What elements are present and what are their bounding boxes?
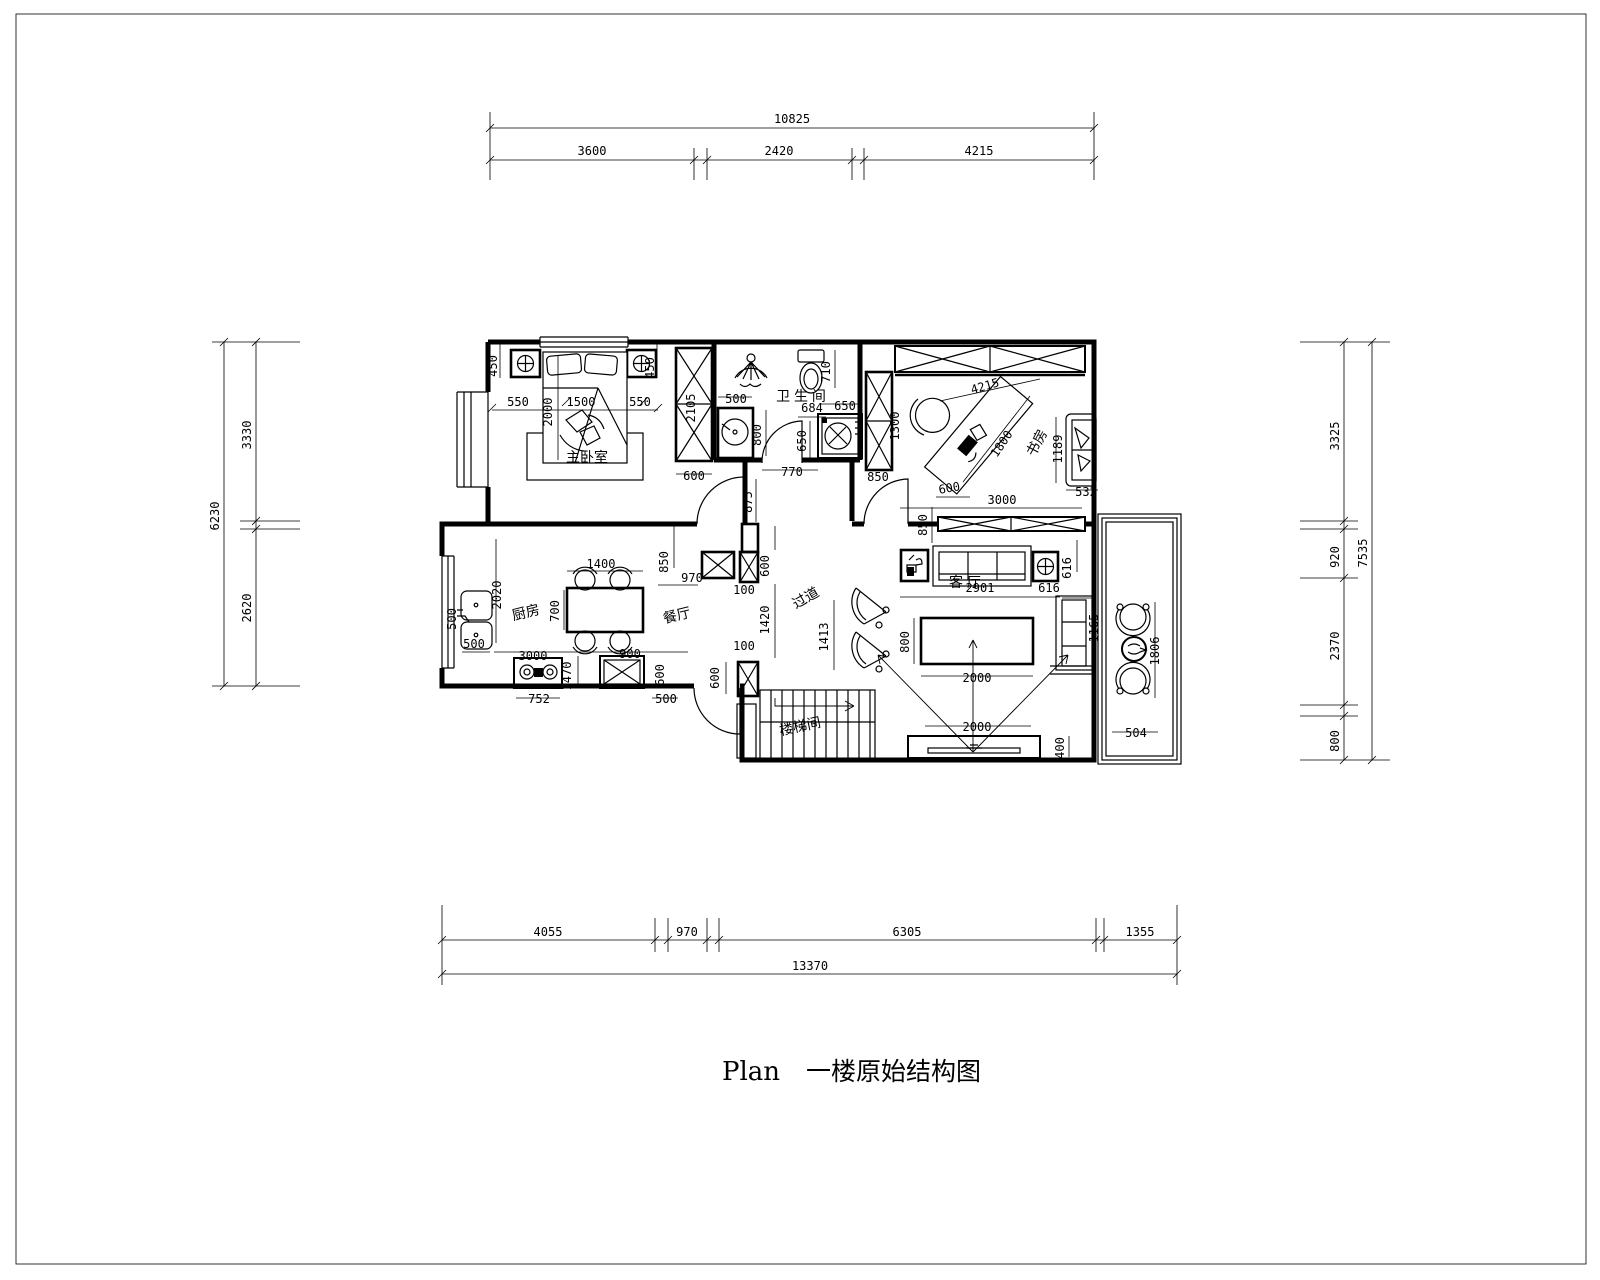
dim-right-seg-1: 920 (1328, 546, 1342, 568)
shower-icon (735, 354, 767, 387)
dimension-label: 1189 (1051, 435, 1065, 464)
living-sofa (933, 546, 1031, 586)
dimension-label: 500 (725, 392, 747, 406)
room-label-study: 书房 (1023, 427, 1050, 459)
corridor-column-a (702, 552, 734, 578)
dimension-label: 4215 (969, 375, 1001, 396)
dimension-label: 600 (758, 555, 772, 577)
dim-right-total: 7535 (1356, 539, 1370, 568)
living-appliance-box (901, 550, 928, 581)
dimension-label: 800 (750, 424, 764, 446)
dimension-label: 400 (1053, 737, 1067, 759)
balcony-chair-2 (1116, 662, 1150, 694)
dimension-label: 1806 (1148, 637, 1162, 666)
drawing-title: Plan 一楼原始结构图 (722, 1057, 981, 1087)
floor-plan-page: 10825 3600 2420 4215 4055 970 6305 1355 … (0, 0, 1600, 1280)
nightstand-left (511, 350, 540, 377)
corridor-armchair-1 (852, 588, 889, 628)
room-label-corridor: 过道 (789, 584, 821, 612)
dimension-label: 850 (657, 551, 671, 573)
dimension-label: 532 (1075, 485, 1097, 499)
dimension-label: 550 (507, 395, 529, 409)
dimension-label: 3000 (519, 649, 548, 663)
room-label-kitchen: 厨房 (510, 601, 541, 623)
dimension-label: 600 (708, 667, 722, 689)
corridor-armchair-2 (852, 632, 889, 672)
dining-chairs (573, 567, 632, 654)
dimension-label: 2020 (490, 581, 504, 610)
title-plan-text: 一楼原始结构图 (806, 1058, 981, 1086)
study-top-window (895, 346, 1085, 375)
page-border (16, 14, 1586, 1264)
dimension-label: 100 (733, 583, 755, 597)
dimension-label: 504 (1125, 726, 1147, 740)
dimension-label: 2000 (541, 398, 555, 427)
dimension-label: 100 (733, 639, 755, 653)
dining-table (567, 588, 643, 632)
dimension-label: 900 (619, 647, 641, 661)
vanity-sink (718, 408, 753, 458)
dim-top-seg-1: 2420 (765, 144, 794, 158)
bedroom-door (697, 477, 745, 524)
dimension-label: 650 (795, 430, 809, 452)
dimension-label: 700 (548, 600, 562, 622)
dimension-label: 1413 (817, 623, 831, 652)
dim-bottom-seg-0: 4055 (534, 925, 563, 939)
dimension-label: 800 (898, 631, 912, 653)
dimension-label: 970 (681, 571, 703, 585)
balcony-table (1122, 637, 1146, 661)
room-label-dining-room: 餐厅 (661, 604, 692, 626)
living-column-circle-cross (1033, 552, 1058, 581)
dimension-label: 600 (683, 469, 705, 483)
dim-left-seg-1: 2620 (240, 594, 254, 623)
dimension-label: 1400 (587, 557, 616, 571)
dimension-label: 770 (781, 465, 803, 479)
corridor-wall-stub (742, 524, 758, 552)
dimension-label: 2105 (684, 394, 698, 423)
dimension-label: 616 (1038, 581, 1060, 595)
dim-bottom-seg-2: 6305 (893, 925, 922, 939)
corridor-column-c (738, 662, 758, 696)
dimension-label: 500 (463, 637, 485, 651)
dimension-label: 1470 (560, 662, 574, 691)
dim-chain-top: 10825 3600 2420 4215 (486, 112, 1098, 180)
room-label-master-bedroom: 主卧室 (566, 449, 608, 465)
dim-bottom-seg-3: 1355 (1126, 925, 1155, 939)
dimension-label: 752 (528, 692, 550, 706)
entry-door (694, 688, 740, 734)
dimension-label: 600 (937, 479, 961, 497)
dimension-label: 710 (819, 361, 833, 383)
dimension-label: 1420 (758, 606, 772, 635)
dimension-label: 450 (643, 357, 657, 379)
balcony-chair-1 (1116, 604, 1150, 636)
floor-plan-drawing: 10825 3600 2420 4215 4055 970 6305 1355 … (0, 0, 1600, 1280)
coffee-table (921, 618, 1033, 664)
washing-machine (818, 414, 862, 458)
dimension-label: 850 (916, 514, 930, 536)
appliance-icon (907, 567, 914, 576)
study-chair (910, 398, 949, 435)
dimension-label: 650 (834, 399, 856, 413)
dimension-label: 3000 (988, 493, 1017, 507)
dimension-label: 1800 (988, 428, 1016, 460)
dimension-label: 500 (445, 608, 459, 630)
dimension-label: 600 (653, 664, 667, 686)
dim-right-seg-0: 3325 (1328, 422, 1342, 451)
corridor-column-b (740, 552, 758, 582)
study-bottom-window (938, 517, 1085, 531)
dimension-label: 450 (486, 355, 500, 377)
dim-top-seg-2: 4215 (965, 144, 994, 158)
dimension-label: 875 (741, 491, 755, 513)
study-door (864, 479, 908, 524)
dim-right-seg-3: 800 (1328, 730, 1342, 752)
dim-chain-left: 3330 2620 6230 (208, 338, 300, 690)
room-label-bathroom: 卫 生 间 (776, 388, 826, 404)
dimension-label: 1500 (567, 395, 596, 409)
dimension-label: 616 (1060, 557, 1074, 579)
dimension-label: 2000 (963, 671, 992, 685)
dimension-label: 850 (867, 470, 889, 484)
dim-left-total: 6230 (208, 502, 222, 531)
dim-left-seg-0: 3330 (240, 421, 254, 450)
tv-cabinet (908, 736, 1040, 758)
room-label-living-room: 客 厅 (949, 574, 981, 590)
dim-top-total: 10825 (774, 112, 810, 126)
dim-chain-bottom: 4055 970 6305 1355 13370 (438, 905, 1181, 985)
dim-right-seg-2: 2370 (1328, 632, 1342, 661)
dim-bottom-total: 13370 (792, 959, 828, 973)
dim-top-seg-0: 3600 (578, 144, 607, 158)
dimension-label: 500 (655, 692, 677, 706)
dimension-label: 1300 (888, 412, 902, 441)
dimension-label: 2000 (963, 720, 992, 734)
dimension-label: 550 (629, 395, 651, 409)
dim-chain-right: 3325 920 2370 800 7535 (1300, 338, 1390, 764)
dimension-label: 1165 (1087, 614, 1101, 643)
dim-bottom-seg-1: 970 (676, 925, 698, 939)
title-plan-label: Plan (722, 1057, 780, 1087)
